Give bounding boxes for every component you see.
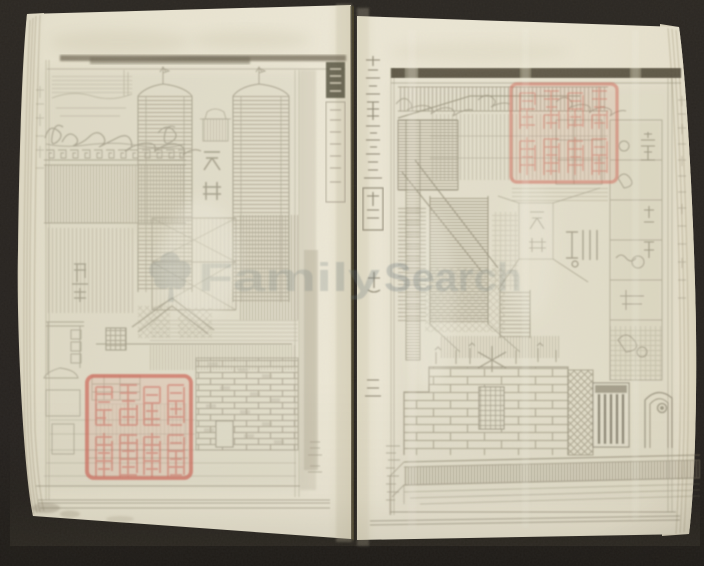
svg-text:Search: Search — [384, 256, 522, 300]
svg-text:Family: Family — [198, 256, 381, 300]
